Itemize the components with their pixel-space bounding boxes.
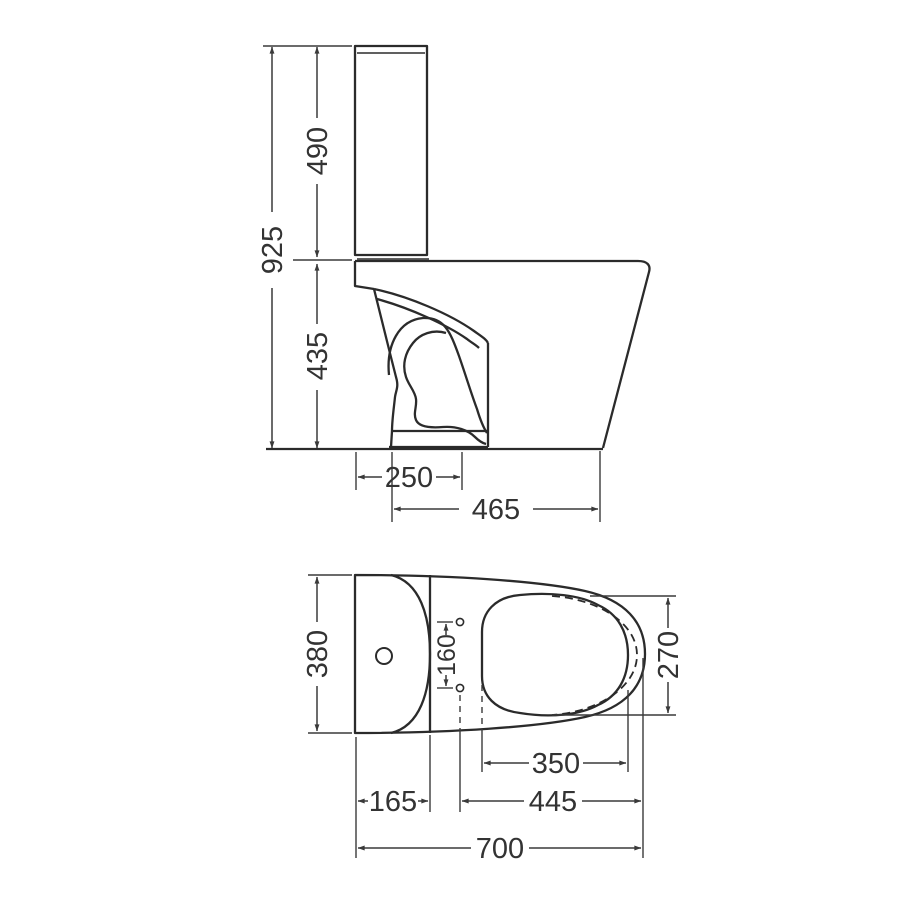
- dim-label-925: 925: [257, 226, 289, 274]
- dim-label-165: 165: [369, 786, 417, 818]
- dim-label-380: 380: [302, 630, 334, 678]
- technical-drawing-page: 925 490 435 250 465: [0, 0, 900, 900]
- toilet-dimension-drawing: 925 490 435 250 465: [0, 0, 900, 900]
- dim-label-445: 445: [529, 786, 577, 818]
- side-view: 925 490 435 250 465: [257, 46, 650, 526]
- dim-label-700: 700: [476, 833, 524, 865]
- seat-hinge-hole-bottom: [456, 684, 463, 691]
- dim-label-435: 435: [302, 332, 334, 380]
- dim-label-250: 250: [385, 462, 433, 494]
- trapway-curve: [404, 332, 486, 444]
- dim-label-465: 465: [472, 494, 520, 526]
- dim-overall-width: 380: [302, 577, 334, 731]
- dim-label-160: 160: [433, 634, 461, 676]
- dim-bowl-height: 435: [302, 264, 334, 448]
- plan-tank-lid-curve: [391, 575, 430, 733]
- dim-bowl-opening-length: 350: [484, 748, 626, 780]
- dim-bowl-opening-width: 270: [653, 598, 685, 713]
- dim-hinge-hole-spacing: 160: [433, 624, 461, 686]
- hidden-rim-curve: [552, 596, 637, 715]
- bowl-front-edge: [374, 289, 397, 447]
- seat-hinge-hole-top: [456, 618, 463, 625]
- dim-trap-offset: 250: [358, 462, 460, 494]
- dim-overall-depth: 700: [358, 833, 641, 865]
- dim-tank-height: 490: [302, 47, 334, 257]
- bowl-front-top: [355, 261, 374, 289]
- dim-hinge-to-front: 445: [462, 786, 641, 818]
- dim-tank-depth: 165: [358, 786, 428, 818]
- plan-view: 380 160 270 350 165 445: [302, 575, 685, 865]
- dim-label-270: 270: [653, 631, 685, 679]
- dim-label-350: 350: [532, 748, 580, 780]
- dim-overall-height: 925: [257, 47, 289, 448]
- flush-button: [376, 648, 392, 664]
- dim-label-490: 490: [302, 127, 334, 175]
- bowl-sump-curve: [389, 318, 487, 433]
- dim-bowl-depth: 465: [394, 494, 598, 526]
- bowl-outline: [355, 261, 650, 448]
- plan-outline: [355, 575, 645, 733]
- rim-outer-curve: [374, 289, 488, 343]
- tank-outline: [355, 46, 427, 255]
